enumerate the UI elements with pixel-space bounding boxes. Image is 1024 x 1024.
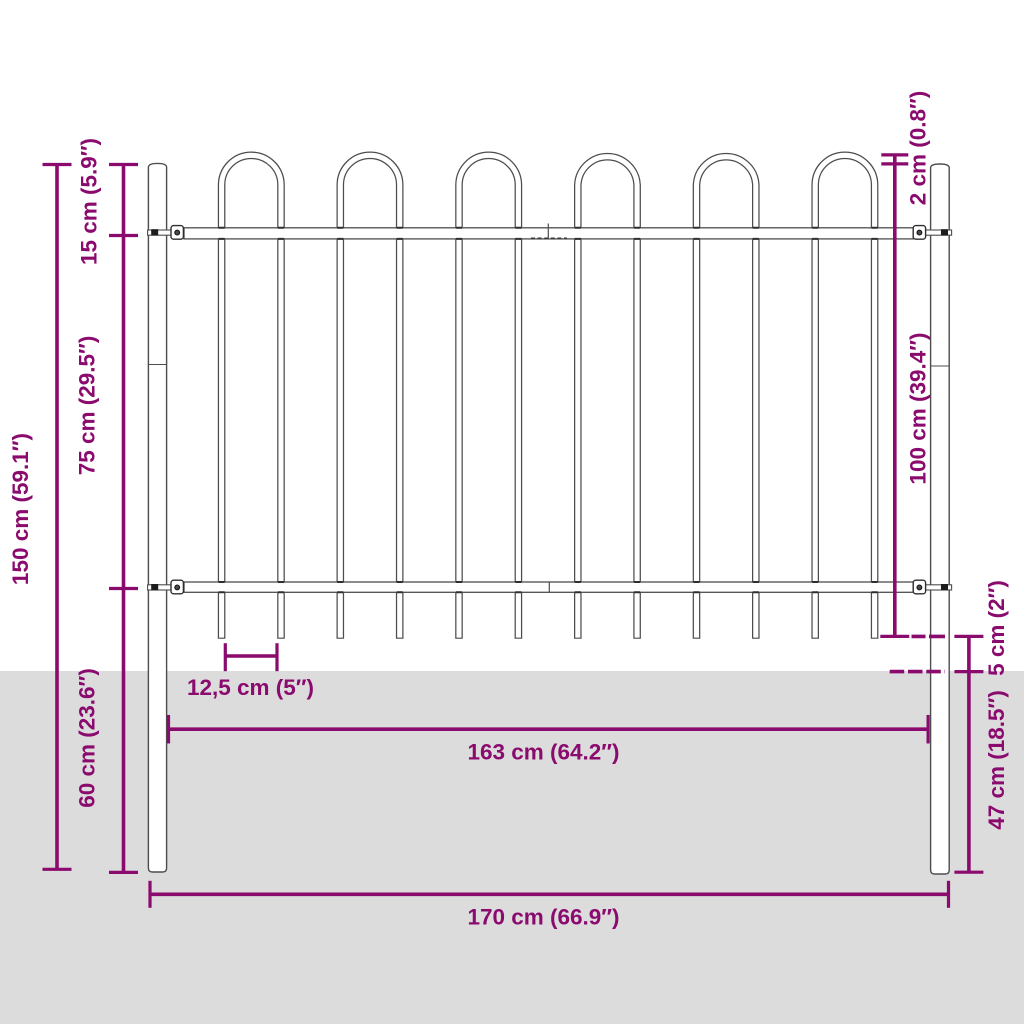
svg-text:100 cm (39.4″): 100 cm (39.4″) [906,332,931,484]
svg-text:47 cm (18.5″): 47 cm (18.5″) [984,690,1009,830]
svg-text:2 cm (0.8″): 2 cm (0.8″) [906,91,931,206]
svg-text:12,5 cm (5″): 12,5 cm (5″) [187,675,314,700]
svg-text:15 cm (5.9″): 15 cm (5.9″) [77,138,102,265]
svg-text:60 cm (23.6″): 60 cm (23.6″) [75,668,100,808]
svg-text:5 cm (2″): 5 cm (2″) [984,580,1009,676]
svg-text:170 cm (66.9″): 170 cm (66.9″) [467,905,619,930]
svg-text:75 cm (29.5″): 75 cm (29.5″) [75,336,100,476]
svg-text:163 cm (64.2″): 163 cm (64.2″) [467,739,619,764]
svg-text:150 cm (59.1″): 150 cm (59.1″) [8,433,33,585]
